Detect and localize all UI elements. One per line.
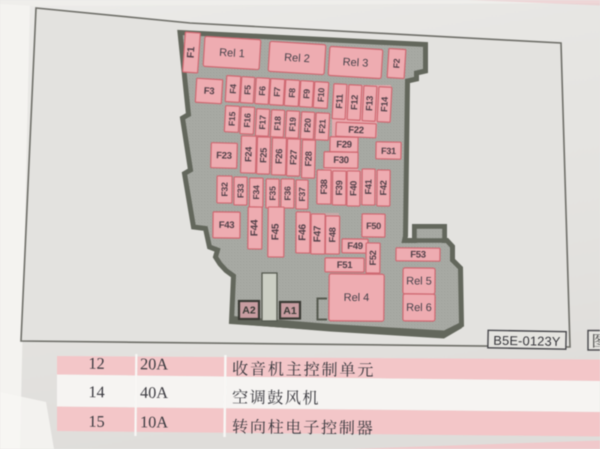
svg-text:F7: F7 bbox=[272, 86, 283, 97]
svg-text:F21: F21 bbox=[317, 119, 328, 134]
svg-text:F32: F32 bbox=[219, 182, 229, 197]
svg-text:F40: F40 bbox=[348, 181, 358, 196]
svg-text:F46: F46 bbox=[297, 224, 308, 241]
svg-text:F47: F47 bbox=[312, 225, 323, 242]
svg-text:40A: 40A bbox=[140, 383, 168, 402]
svg-text:A1: A1 bbox=[283, 305, 297, 317]
svg-text:F12: F12 bbox=[349, 95, 360, 111]
svg-text:20A: 20A bbox=[140, 354, 168, 373]
svg-text:F3: F3 bbox=[203, 86, 214, 98]
svg-text:F14: F14 bbox=[379, 96, 390, 113]
svg-text:F48: F48 bbox=[327, 227, 337, 242]
svg-text:F35: F35 bbox=[267, 186, 277, 201]
svg-text:F10: F10 bbox=[316, 87, 327, 102]
svg-text:F16: F16 bbox=[242, 113, 253, 128]
svg-text:F37: F37 bbox=[297, 187, 307, 202]
svg-text:F5: F5 bbox=[242, 84, 253, 95]
svg-text:F36: F36 bbox=[282, 186, 292, 201]
svg-text:F1: F1 bbox=[186, 46, 198, 59]
svg-text:F33: F33 bbox=[235, 183, 245, 198]
svg-text:F13: F13 bbox=[364, 96, 375, 112]
svg-text:Rel 6: Rel 6 bbox=[406, 302, 432, 314]
svg-text:F44: F44 bbox=[249, 219, 260, 236]
svg-text:F15: F15 bbox=[227, 111, 238, 126]
svg-text:F17: F17 bbox=[257, 115, 268, 130]
svg-text:Rel 2: Rel 2 bbox=[284, 52, 310, 66]
svg-text:10A: 10A bbox=[140, 412, 168, 431]
svg-text:F34: F34 bbox=[251, 185, 261, 200]
svg-text:F2: F2 bbox=[391, 58, 402, 69]
svg-text:F25: F25 bbox=[258, 148, 268, 163]
svg-text:F49: F49 bbox=[347, 241, 363, 252]
svg-text:F31: F31 bbox=[381, 146, 396, 156]
svg-text:Rel 5: Rel 5 bbox=[406, 275, 432, 287]
svg-text:B5E-0123Y: B5E-0123Y bbox=[493, 333, 561, 349]
svg-text:Rel 3: Rel 3 bbox=[342, 56, 368, 70]
svg-text:F53: F53 bbox=[410, 249, 426, 260]
svg-text:F4: F4 bbox=[228, 83, 239, 94]
svg-text:F29: F29 bbox=[336, 139, 352, 150]
svg-text:F50: F50 bbox=[366, 221, 381, 231]
svg-text:F51: F51 bbox=[337, 260, 354, 271]
svg-text:F43: F43 bbox=[219, 220, 235, 231]
svg-text:A2: A2 bbox=[242, 305, 256, 317]
svg-text:Rel 4: Rel 4 bbox=[344, 292, 370, 304]
svg-text:F6: F6 bbox=[257, 85, 268, 96]
svg-text:F52: F52 bbox=[368, 250, 378, 265]
svg-text:F20: F20 bbox=[302, 118, 313, 133]
svg-text:F41: F41 bbox=[363, 179, 373, 194]
svg-text:F22: F22 bbox=[348, 125, 364, 137]
svg-text:F8: F8 bbox=[287, 87, 298, 98]
svg-text:F18: F18 bbox=[272, 116, 283, 131]
svg-text:F45: F45 bbox=[270, 223, 281, 240]
svg-text:F11: F11 bbox=[334, 94, 345, 109]
svg-text:F9: F9 bbox=[301, 88, 312, 99]
svg-text:F27: F27 bbox=[288, 150, 298, 165]
svg-text:F28: F28 bbox=[303, 151, 313, 166]
svg-text:14: 14 bbox=[88, 382, 104, 401]
svg-text:F39: F39 bbox=[334, 180, 344, 195]
svg-text:F42: F42 bbox=[378, 180, 388, 195]
svg-text:12: 12 bbox=[88, 354, 104, 373]
svg-text:15: 15 bbox=[88, 412, 104, 431]
svg-text:Rel 1: Rel 1 bbox=[219, 47, 245, 61]
svg-text:F24: F24 bbox=[243, 146, 253, 162]
svg-text:F38: F38 bbox=[319, 179, 329, 194]
svg-text:F23: F23 bbox=[216, 150, 232, 161]
svg-text:F19: F19 bbox=[287, 117, 298, 132]
svg-text:F26: F26 bbox=[274, 149, 284, 164]
svg-text:F30: F30 bbox=[333, 155, 349, 166]
